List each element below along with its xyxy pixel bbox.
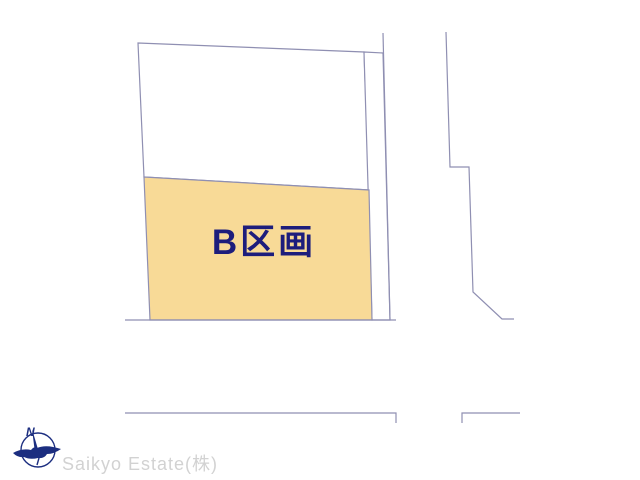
parcel-map-page: B区画 N Saikyo Estate(株): [0, 0, 640, 480]
compass-north-icon: N: [13, 425, 61, 467]
road-edge-far-right: [446, 32, 514, 319]
compass-bird-tail: [37, 458, 39, 465]
company-name-text: Saikyo Estate(株): [62, 450, 218, 476]
road-edge-lower-left: [125, 413, 396, 423]
upper-parcel: [138, 43, 369, 190]
compass-icon: N: [8, 418, 68, 478]
parcel-b-label: B区画: [198, 224, 330, 263]
road-edge-lower-right: [462, 413, 520, 423]
